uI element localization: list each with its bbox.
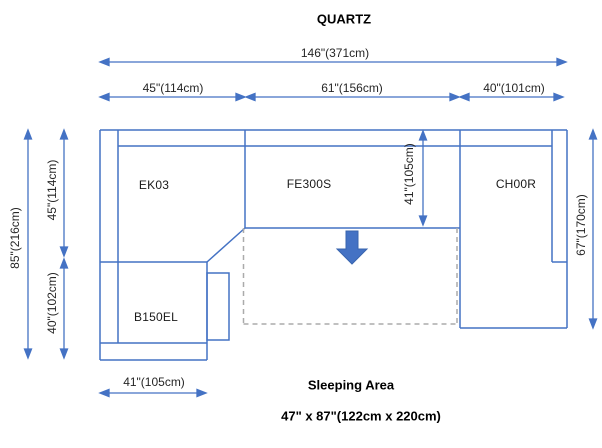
chaise-diagonal-edge (207, 228, 245, 262)
sofa-outline (100, 130, 567, 360)
dim-arrow-ch00r-depth (590, 130, 597, 328)
component-label-b150el: B150EL (134, 310, 178, 324)
dim-arrow-b150el-width (100, 390, 206, 397)
dim-arrow-left-lower-depth (61, 259, 68, 358)
dim-ch00r-width: 40"(101cm) (483, 81, 545, 95)
dim-left-upper-depth: 45"(114cm) (45, 160, 59, 221)
sleeping-area-label: Sleeping Area (308, 378, 394, 393)
sleeping-area-size: 47" x 87"(122cm x 220cm) (281, 409, 441, 424)
dim-arrow-fe300s-depth (420, 131, 427, 225)
diagram-linework (0, 0, 602, 448)
dim-left-lower-depth: 40"(102cm) (45, 272, 59, 334)
dim-b150el-width: 41"(105cm) (123, 375, 185, 389)
component-label-ch00r: CH00R (496, 177, 536, 191)
dim-arrow-left-upper-depth (61, 130, 68, 256)
component-label-ek03: EK03 (139, 178, 169, 192)
dim-ch00r-depth: 67"(170cm) (574, 194, 588, 256)
dim-fe300s-width: 61"(156cm) (321, 81, 383, 95)
page-title: QUARTZ (317, 12, 371, 27)
sofa-dimension-diagram: QUARTZ 146"(371cm) 45"(114cm) 61"(156cm)… (0, 0, 602, 448)
dim-total-depth: 85"(216cm) (8, 207, 22, 269)
dim-total-width: 146"(371cm) (301, 46, 369, 60)
fold-down-arrow-icon (337, 231, 367, 264)
dim-ek03-width: 45"(114cm) (143, 81, 204, 95)
dim-arrow-total-depth (25, 130, 32, 358)
component-label-fe300s: FE300S (287, 177, 332, 191)
dim-fe300s-depth: 41"(105cm) (402, 143, 416, 205)
b150el-armrest (207, 273, 229, 340)
